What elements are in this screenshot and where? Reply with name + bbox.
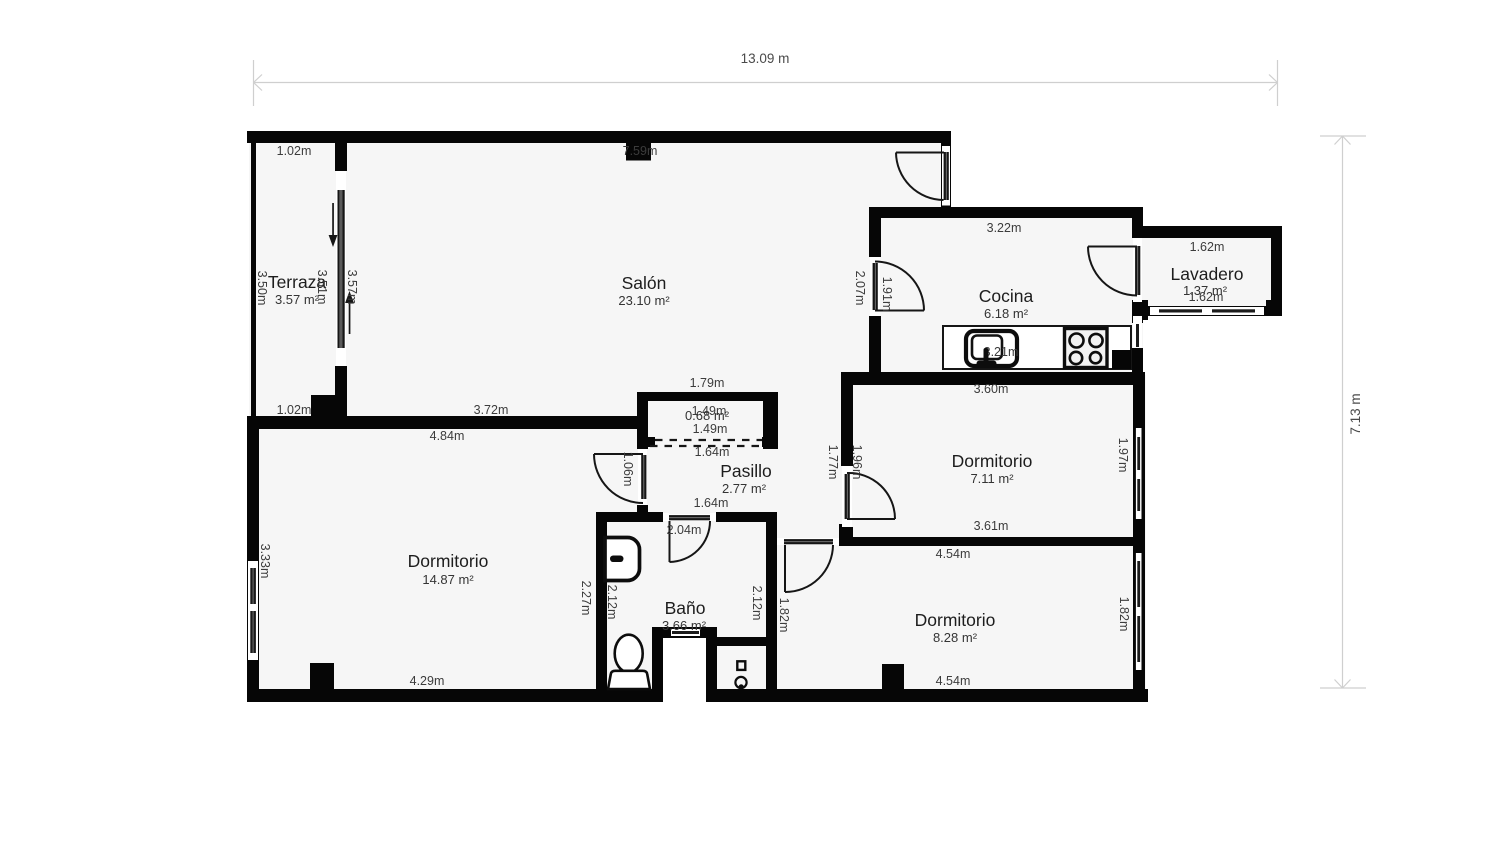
svg-text:3.57 m²: 3.57 m² — [275, 292, 320, 307]
svg-text:4.29m: 4.29m — [410, 674, 445, 688]
svg-text:1.06m: 1.06m — [621, 452, 635, 487]
svg-text:Dormitorio: Dormitorio — [408, 551, 489, 571]
svg-text:3.60m: 3.60m — [974, 382, 1009, 396]
svg-text:1.82m: 1.82m — [1117, 597, 1131, 632]
svg-text:1.82m: 1.82m — [777, 598, 791, 633]
svg-text:1.77m: 1.77m — [826, 445, 840, 480]
svg-text:8.28 m²: 8.28 m² — [933, 630, 978, 645]
svg-text:3.33m: 3.33m — [258, 544, 272, 579]
svg-text:2.77 m²: 2.77 m² — [722, 481, 767, 496]
svg-text:1.02m: 1.02m — [277, 144, 312, 158]
svg-text:6.18 m²: 6.18 m² — [984, 306, 1029, 321]
svg-text:3.72m: 3.72m — [474, 403, 509, 417]
svg-text:0.68 m²: 0.68 m² — [685, 408, 730, 423]
svg-text:3.57m: 3.57m — [345, 270, 359, 305]
svg-text:2.04m: 2.04m — [667, 523, 702, 537]
svg-text:Lavadero: Lavadero — [1171, 264, 1244, 284]
svg-text:3.21m: 3.21m — [984, 345, 1019, 359]
svg-text:2.07m: 2.07m — [853, 271, 867, 306]
svg-text:13.09 m: 13.09 m — [741, 51, 790, 66]
svg-text:14.87 m²: 14.87 m² — [422, 572, 474, 587]
svg-text:1.79m: 1.79m — [690, 376, 725, 390]
svg-text:1.64m: 1.64m — [695, 445, 730, 459]
svg-text:1.49m: 1.49m — [693, 422, 728, 436]
svg-text:4.54m: 4.54m — [936, 674, 971, 688]
svg-text:2.12m: 2.12m — [605, 585, 619, 620]
svg-text:3.61m: 3.61m — [974, 519, 1009, 533]
svg-text:1.62m: 1.62m — [1190, 240, 1225, 254]
svg-text:1.96m: 1.96m — [850, 445, 864, 480]
svg-text:1.62m: 1.62m — [1189, 290, 1224, 304]
svg-text:Dormitorio: Dormitorio — [915, 610, 996, 630]
svg-text:1.64m: 1.64m — [694, 496, 729, 510]
svg-text:Cocina: Cocina — [979, 286, 1034, 306]
svg-text:1.91m: 1.91m — [880, 277, 894, 312]
svg-text:2.27m: 2.27m — [579, 581, 593, 616]
svg-text:3.22m: 3.22m — [987, 221, 1022, 235]
svg-text:Baño: Baño — [665, 598, 706, 618]
svg-text:1.02m: 1.02m — [277, 403, 312, 417]
svg-text:Dormitorio: Dormitorio — [952, 451, 1033, 471]
svg-text:4.54m: 4.54m — [936, 547, 971, 561]
svg-text:3.50m: 3.50m — [255, 271, 269, 306]
svg-text:2.12m: 2.12m — [750, 586, 764, 621]
svg-text:Salón: Salón — [622, 273, 667, 293]
svg-text:7.13 m: 7.13 m — [1348, 393, 1363, 434]
svg-text:Pasillo: Pasillo — [720, 461, 772, 481]
svg-text:7.11 m²: 7.11 m² — [970, 471, 1014, 486]
svg-text:3.51m: 3.51m — [315, 270, 329, 305]
svg-text:7.59m: 7.59m — [623, 144, 658, 158]
svg-text:4.84m: 4.84m — [430, 429, 465, 443]
svg-text:23.10 m²: 23.10 m² — [618, 293, 670, 308]
svg-text:3.66 m²: 3.66 m² — [662, 618, 707, 633]
svg-text:1.97m: 1.97m — [1116, 438, 1130, 473]
